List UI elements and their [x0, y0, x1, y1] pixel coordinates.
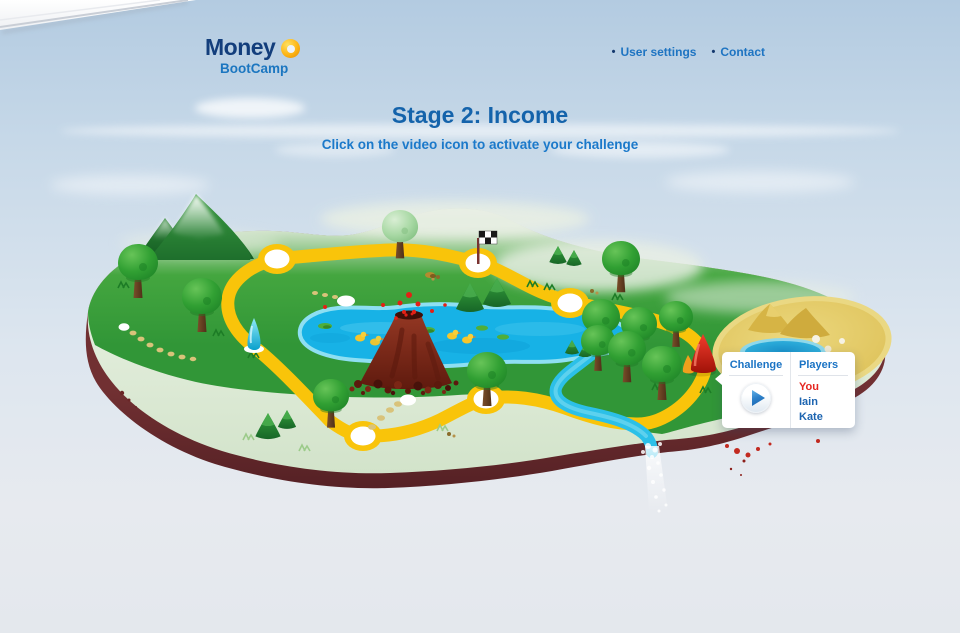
play-video-button[interactable]	[741, 383, 771, 413]
page-subtitle: Click on the video icon to activate your…	[0, 137, 960, 152]
bullet-icon: •	[612, 46, 616, 58]
player-name: You	[799, 380, 855, 395]
logo-bootcamp-text: BootCamp	[220, 62, 300, 76]
challenge-header: Challenge	[722, 352, 790, 375]
waterfall	[645, 446, 668, 512]
challenge-popup: Challenge Players You Iain Kate	[722, 352, 855, 428]
contact-link[interactable]: • Contact	[711, 45, 765, 59]
players-header: Players	[791, 352, 855, 375]
header-nav: • User settings • Contact	[612, 45, 765, 59]
user-settings-label: User settings	[620, 45, 696, 59]
page-title: Stage 2: Income	[0, 102, 960, 129]
finish-flag-icon	[479, 231, 497, 244]
player-name: Kate	[799, 410, 855, 425]
page-curl	[0, 0, 196, 32]
path-stop[interactable]	[258, 244, 296, 274]
stage-map	[0, 0, 960, 633]
player-name: Iain	[799, 395, 855, 410]
path-stop[interactable]	[344, 421, 382, 451]
divider	[798, 375, 848, 376]
logo[interactable]: Money BootCamp	[205, 36, 300, 76]
challenge-column: Challenge	[722, 352, 791, 428]
popup-pointer	[715, 373, 722, 385]
players-list: You Iain Kate	[791, 380, 855, 425]
divider	[729, 375, 783, 376]
contact-label: Contact	[720, 45, 765, 59]
logo-money-text: Money	[205, 36, 275, 59]
snow-mountains	[137, 194, 254, 260]
players-column: Players You Iain Kate	[791, 352, 855, 428]
bullet-icon: •	[711, 46, 715, 58]
logo-donut-icon	[281, 39, 300, 58]
play-icon	[752, 390, 765, 406]
user-settings-link[interactable]: • User settings	[612, 45, 697, 59]
